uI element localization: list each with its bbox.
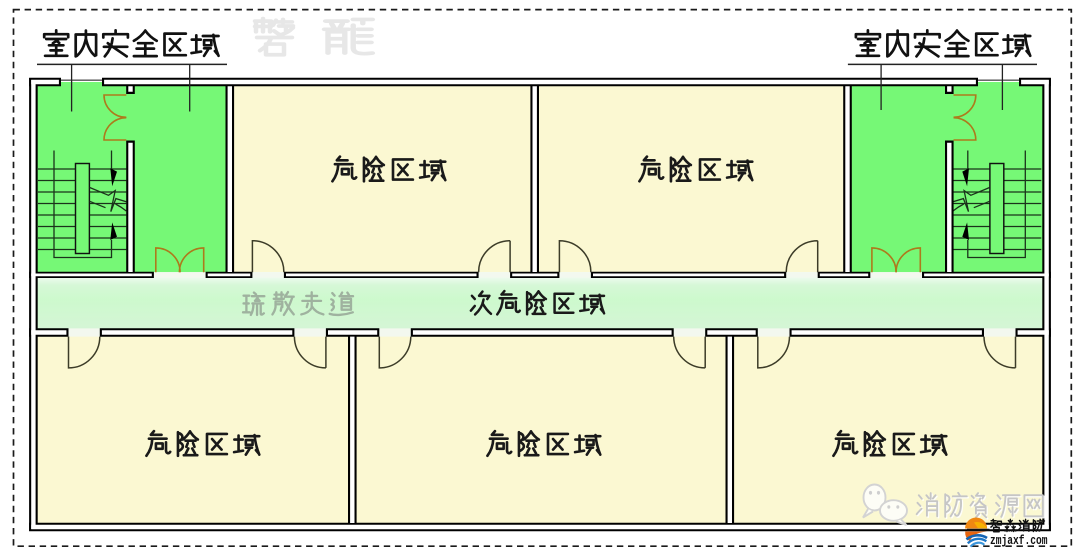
svg-text:zmjaxf.com: zmjaxf.com	[990, 533, 1048, 548]
